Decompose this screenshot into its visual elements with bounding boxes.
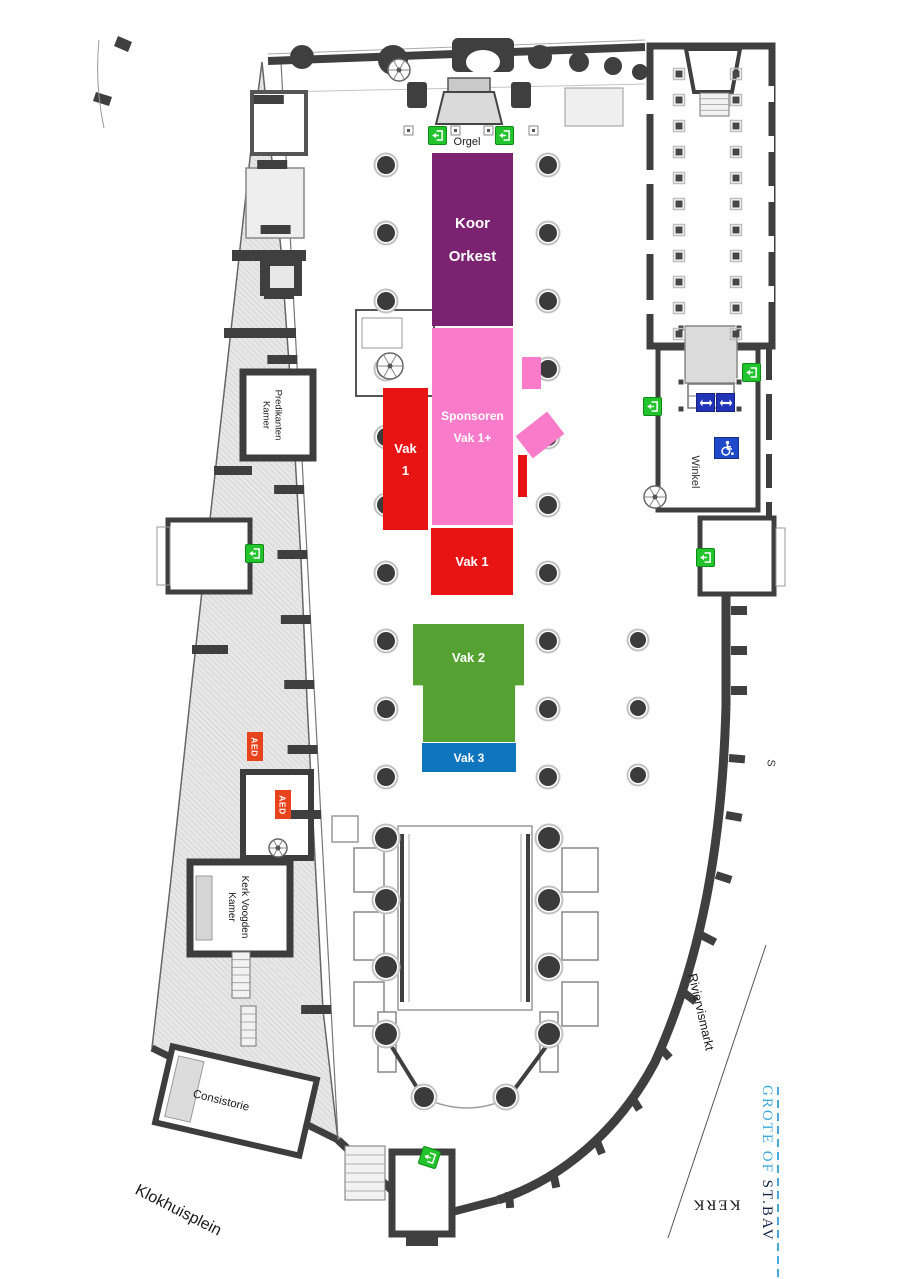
zone-vak3: Vak 3 (422, 743, 516, 772)
kerk-label: KERK (692, 1196, 741, 1213)
aed-badge: AED (247, 732, 263, 761)
zone-label: Vak (394, 441, 416, 456)
zone-koor-orkest: Koor Orkest (432, 153, 513, 326)
zone-label: 1 (402, 463, 409, 478)
shop-label: Winkel (689, 455, 701, 488)
wc-icon (696, 393, 715, 412)
emergency-exit-icon (696, 548, 715, 567)
predikanten-kamer-label: Predikanten Kamer (259, 390, 284, 441)
zone-red-strip (518, 455, 527, 497)
zone-label: Orkest (449, 248, 497, 265)
zone-vak2: Vak 2 (413, 624, 524, 742)
edge-letter: S (764, 759, 777, 767)
emergency-exit-icon (428, 126, 447, 145)
church-name-label: GROTE OF ST.BAV (757, 1085, 777, 1242)
zone-label: Sponsoren (441, 409, 504, 423)
zone-label: Vak 3 (454, 751, 485, 765)
emergency-exit-icon (495, 126, 514, 145)
zone-sponsoren-vak1plus: Sponsoren Vak 1+ (432, 328, 513, 525)
emergency-exit-icon (245, 544, 264, 563)
zone-sponsoren-annex (522, 357, 541, 389)
emergency-exit-icon (742, 363, 761, 382)
floor-plan: Koor Orkest Sponsoren Vak 1+ Vak 1 Vak 1… (0, 0, 904, 1279)
emergency-exit-icon (643, 397, 662, 416)
zone-label: Vak 1+ (454, 431, 492, 445)
wheelchair-icon (714, 437, 739, 459)
zone-label: Vak 2 (452, 650, 485, 665)
organ-label: Orgel (447, 136, 487, 148)
wc-icon (716, 393, 735, 412)
aed-badge: AED (275, 790, 291, 819)
zone-vak1-front: Vak 1 (431, 528, 513, 595)
kerk-voogden-kamer-label: Kerk Voogden Kamer (225, 876, 251, 939)
zone-vak1-side: Vak 1 (383, 388, 428, 530)
zone-label: Koor (455, 215, 490, 232)
zone-label: Vak 1 (455, 554, 488, 569)
